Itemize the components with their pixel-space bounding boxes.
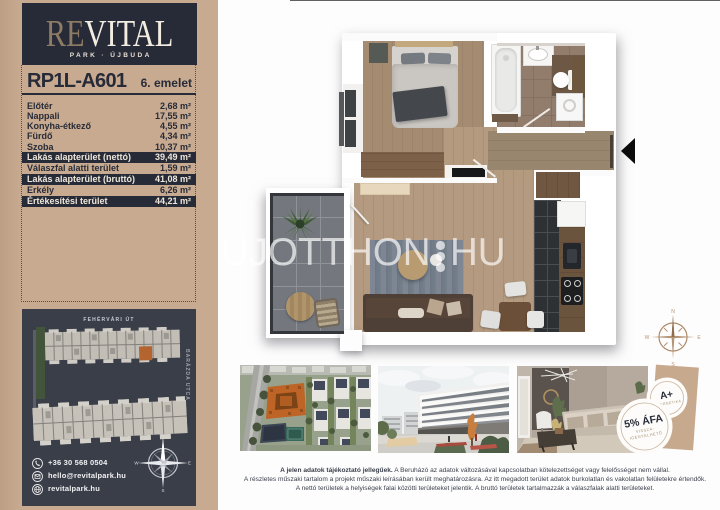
svg-text:N: N [161, 434, 164, 439]
svg-text:N: N [671, 309, 675, 315]
svg-text:E: E [697, 335, 701, 341]
svg-text:E: E [188, 461, 191, 466]
svg-text:W: W [645, 335, 650, 341]
